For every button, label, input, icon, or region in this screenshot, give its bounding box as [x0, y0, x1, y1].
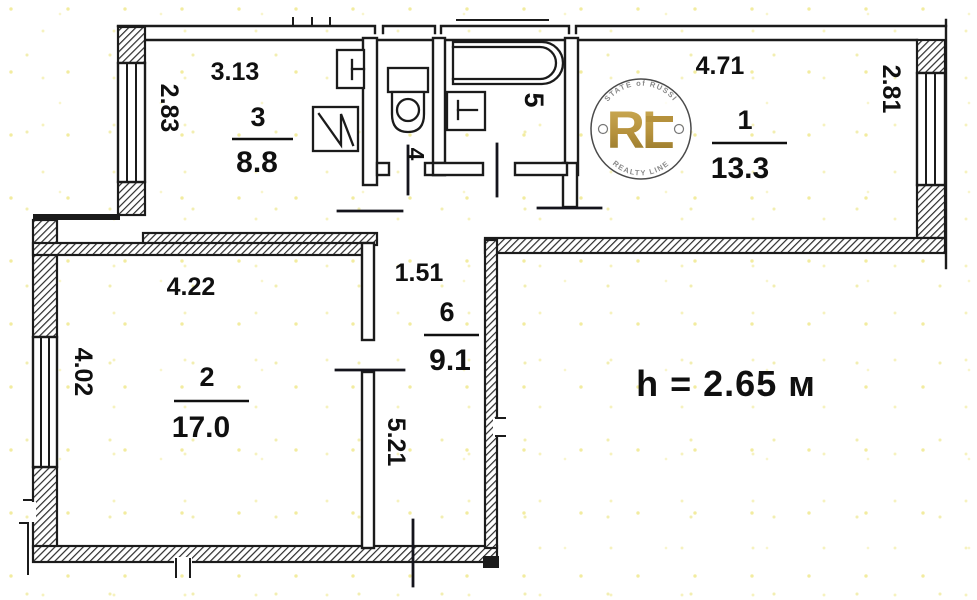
wall-segment: [118, 26, 375, 33]
wall-segment: [485, 240, 497, 548]
wall-room2-hall: [362, 372, 374, 548]
window-room2: [33, 337, 57, 467]
room4-number: 4: [403, 148, 429, 161]
kitchen-sink-icon: [337, 50, 364, 88]
wall-segment: [33, 546, 497, 562]
room5-number: 5: [519, 92, 549, 107]
room1-width-dim: 4.71: [696, 52, 745, 80]
stove-icon: [313, 107, 358, 151]
room2-width-dim: 4.22: [167, 273, 216, 301]
floor-plan-page: 3.13 2.83 3 8.8 4.71 2.81 1 13.3 4.22 4.…: [0, 0, 977, 600]
washbasin-icon: [447, 92, 485, 130]
wall-bath-bottom: [433, 163, 483, 175]
window-kitchen: [118, 63, 145, 182]
room2-height-dim: 4.02: [69, 348, 97, 397]
room3-width-dim: 3.13: [211, 58, 260, 86]
room6-area: 9.1: [429, 344, 471, 377]
floor-plan: 3.13 2.83 3 8.8 4.71 2.81 1 13.3 4.22 4.…: [0, 0, 977, 600]
joint-gap: [30, 502, 36, 522]
joint-gap: [493, 418, 499, 436]
wall-wc-bottom: [377, 163, 389, 175]
ceiling-height-label: h = 2.65 м: [636, 363, 816, 404]
wall-segment: [917, 185, 945, 238]
room3-height-dim: 2.83: [155, 84, 183, 133]
window-room1: [917, 73, 945, 185]
wall-bath-room1: [565, 38, 578, 175]
wall-wc-bath: [433, 38, 445, 175]
wall-segment: [383, 26, 435, 33]
room6-width-dim: 1.51: [395, 259, 444, 287]
wall-segment: [576, 26, 946, 33]
room3-area: 8.8: [236, 146, 278, 179]
room1-height-dim: 2.81: [877, 65, 905, 114]
wall-segment: [441, 26, 569, 33]
room1-area: 13.3: [711, 152, 769, 185]
wall-segment: [33, 243, 365, 255]
room6-height-dim: 5.21: [382, 418, 410, 467]
room2-area: 17.0: [172, 411, 230, 444]
wall-segment: [917, 40, 945, 73]
room2-number: 2: [199, 362, 214, 392]
watermark-dot-right: [675, 125, 684, 134]
room6-number: 6: [439, 297, 454, 327]
bathtub-icon: [453, 42, 563, 84]
wall-segment: [485, 238, 945, 253]
wall-segment: [33, 220, 57, 337]
toilet-icon: [388, 68, 428, 132]
wall-segment: [118, 182, 145, 215]
wall-bath-bottom: [515, 163, 567, 175]
wall-segment: [33, 467, 57, 548]
watermark-monogram-crossbar: [646, 116, 673, 122]
room1-number: 1: [737, 105, 752, 135]
room3-number: 3: [250, 102, 265, 132]
wall-room2-hall: [362, 243, 374, 340]
watermark-monogram: RL: [607, 101, 673, 160]
wall-segment: [483, 556, 499, 568]
wall-segment: [118, 27, 145, 63]
